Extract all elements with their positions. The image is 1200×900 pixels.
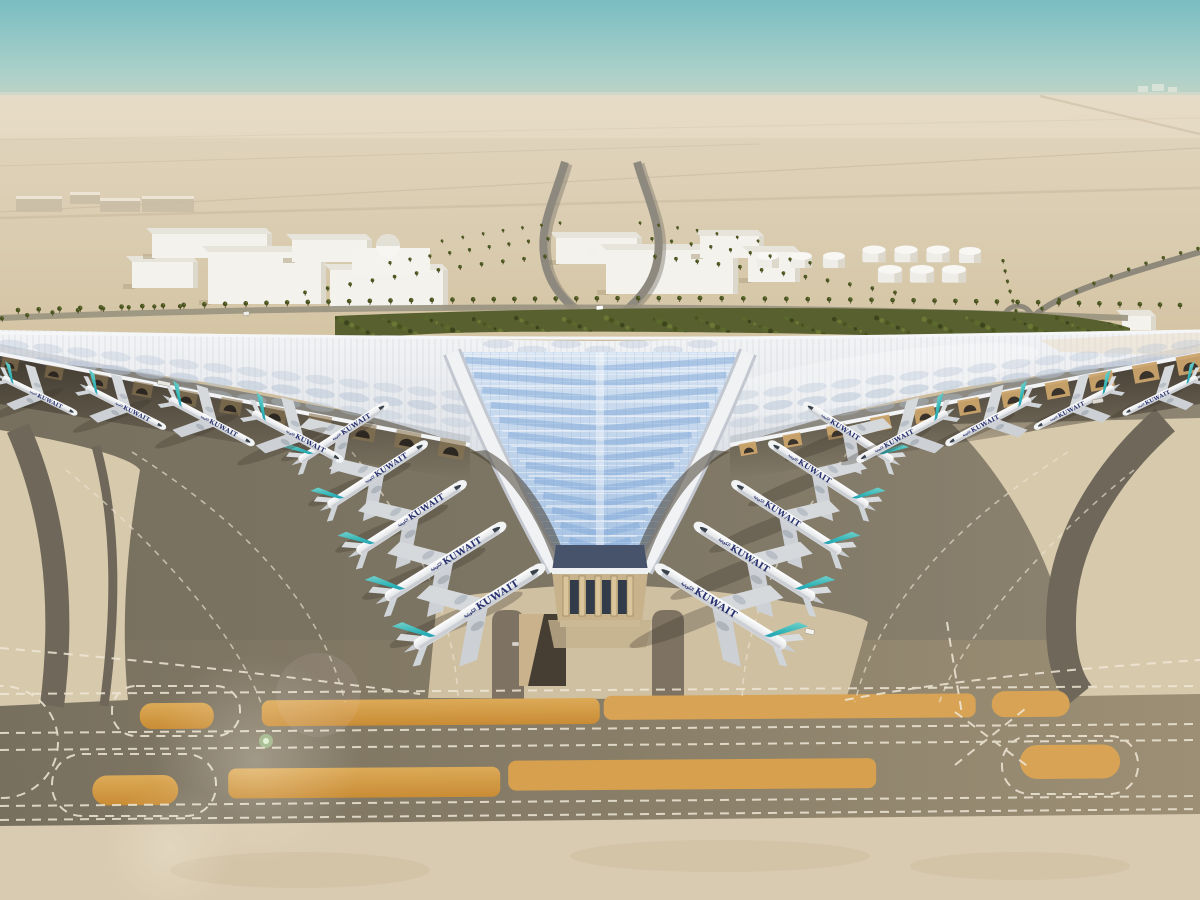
- tree-canopy-dot: [541, 328, 544, 331]
- palm-tree: [650, 237, 653, 240]
- palm-tree: [1004, 269, 1007, 272]
- tree-canopy-dot: [933, 322, 938, 327]
- tree-canopy-dot: [514, 316, 519, 321]
- tree-canopy-dot: [1055, 316, 1059, 320]
- palm-tree: [76, 308, 80, 312]
- tree-canopy-dot: [768, 329, 773, 334]
- palm-tree: [25, 313, 29, 317]
- palm-tree: [491, 297, 496, 302]
- tree-canopy-dot: [477, 320, 481, 324]
- tree-canopy-dot: [445, 325, 450, 330]
- tree-canopy-dot: [848, 325, 852, 329]
- palm-tree: [729, 248, 732, 251]
- entrance-column: [627, 576, 633, 616]
- tree-canopy-dot: [631, 328, 635, 332]
- palm-tree: [448, 251, 451, 254]
- palm-tree: [656, 296, 661, 301]
- palm-tree: [741, 296, 746, 301]
- tree-canopy-dot: [360, 328, 364, 332]
- tree-canopy-dot: [397, 324, 402, 329]
- tree-canopy-dot: [1060, 319, 1064, 323]
- tree-canopy-dot: [435, 321, 438, 324]
- tree-canopy-dot: [896, 326, 900, 330]
- palm-tree: [533, 296, 538, 301]
- tree-canopy-dot: [403, 326, 408, 331]
- palm-tree: [543, 255, 547, 259]
- palm-tree: [161, 303, 166, 308]
- tree-canopy-dot: [880, 318, 885, 323]
- tree-canopy-dot: [450, 327, 455, 332]
- fuel-tank: [823, 252, 845, 268]
- entrance-glass-wall: [552, 545, 648, 571]
- tree-canopy-dot: [609, 318, 614, 323]
- palm-tree: [1077, 301, 1082, 306]
- tree-canopy-dot: [382, 318, 385, 321]
- palm-tree: [690, 242, 693, 245]
- tree-canopy-dot: [991, 328, 996, 333]
- tree-canopy-dot: [837, 319, 841, 323]
- palm-tree: [827, 297, 832, 302]
- tree-canopy-dot: [700, 319, 703, 322]
- palm-tree: [738, 265, 742, 269]
- tree-canopy-dot: [1077, 326, 1080, 329]
- tree-canopy-dot: [1013, 318, 1016, 321]
- tree-canopy-dot: [483, 322, 486, 325]
- palm-tree: [1097, 301, 1102, 306]
- palm-tree: [1144, 261, 1147, 264]
- tree-canopy-dot: [801, 324, 804, 327]
- tree-canopy-dot: [907, 331, 910, 334]
- tree-canopy-dot: [525, 321, 529, 325]
- palm-tree: [57, 306, 62, 311]
- fuel-tank: [926, 246, 949, 263]
- tree-canopy-dot: [885, 321, 890, 326]
- palm-tree: [326, 286, 330, 290]
- fuel-tank: [959, 247, 981, 263]
- palm-tree: [890, 298, 895, 303]
- fuel-tank: [790, 252, 812, 268]
- tree-canopy-dot: [578, 324, 582, 328]
- palm-tree: [428, 254, 431, 257]
- tree-canopy-dot: [615, 320, 620, 325]
- palm-tree: [501, 259, 505, 263]
- palm-tree: [1158, 302, 1163, 307]
- horizon-haze: [0, 92, 1200, 138]
- palm-tree: [1092, 281, 1095, 284]
- palm-tree: [719, 296, 724, 301]
- tree-canopy-dot: [1024, 323, 1027, 326]
- tree-canopy-dot: [759, 325, 762, 328]
- palm-tree: [527, 240, 530, 243]
- palm-tree: [826, 278, 830, 282]
- palm-tree: [677, 296, 682, 301]
- palm-tree: [788, 258, 791, 261]
- left-sand-wedge: [0, 428, 140, 706]
- tree-canopy-dot: [355, 325, 360, 330]
- palm-tree: [437, 268, 441, 272]
- palm-tree: [303, 291, 307, 295]
- palm-tree: [507, 242, 510, 245]
- tree-canopy-dot: [843, 322, 847, 326]
- tree-canopy-dot: [812, 329, 815, 332]
- tree-canopy-dot: [536, 326, 539, 329]
- palm-tree: [348, 282, 352, 286]
- palm-tree: [574, 296, 579, 301]
- palm-tree: [1117, 301, 1122, 306]
- tree-canopy-dot: [763, 326, 768, 331]
- palm-tree: [805, 297, 810, 302]
- tree-canopy-dot: [472, 317, 476, 321]
- palm-tree: [670, 240, 673, 243]
- palm-tree: [869, 297, 874, 302]
- palm-tree: [388, 261, 391, 264]
- palm-tree: [326, 299, 331, 304]
- palm-tree: [808, 261, 811, 264]
- entrance-canopy-edge: [552, 568, 648, 574]
- palm-tree: [1075, 289, 1078, 292]
- tree-canopy-dot: [854, 327, 857, 330]
- palm-tree: [368, 299, 373, 304]
- tree-canopy-dot: [430, 319, 433, 322]
- tree-canopy-dot: [388, 320, 391, 323]
- tree-canopy-dot: [975, 320, 980, 325]
- palm-tree: [430, 298, 435, 303]
- tree-canopy-dot: [949, 329, 953, 333]
- tree-canopy-dot: [980, 323, 985, 328]
- palm-tree: [1036, 300, 1041, 305]
- tree-canopy-dot: [1066, 321, 1069, 324]
- tree-canopy-dot: [625, 325, 629, 329]
- tree-canopy-dot: [668, 324, 673, 329]
- palm-tree: [285, 300, 290, 305]
- tree-canopy-dot: [604, 315, 609, 320]
- tree-canopy-dot: [938, 324, 943, 329]
- tree-canopy-dot: [715, 325, 720, 330]
- tree-canopy-dot: [441, 324, 444, 327]
- palm-tree: [893, 291, 897, 295]
- palm-tree: [512, 297, 517, 302]
- palm-tree: [450, 297, 455, 302]
- palm-tree: [119, 304, 124, 309]
- palm-tree: [471, 297, 476, 302]
- palm-tree: [1196, 247, 1199, 250]
- tree-canopy-dot: [519, 318, 523, 322]
- palm-tree: [763, 296, 768, 301]
- palm-tree: [488, 245, 491, 248]
- palm-tree: [636, 296, 641, 301]
- palm-tree: [848, 297, 853, 302]
- palm-tree: [717, 262, 721, 266]
- tree-canopy-dot: [1028, 324, 1033, 329]
- tree-canopy-dot: [832, 317, 837, 322]
- palm-tree: [458, 265, 462, 269]
- tree-canopy-dot: [673, 327, 678, 332]
- tree-canopy-dot: [965, 316, 968, 319]
- palm-tree: [709, 245, 712, 248]
- palm-tree: [202, 302, 207, 307]
- palm-tree: [995, 299, 1000, 304]
- palm-tree: [932, 298, 937, 303]
- palm-tree: [546, 237, 549, 240]
- entrance-column: [579, 576, 585, 616]
- tree-canopy-dot: [986, 325, 991, 330]
- palm-tree: [264, 301, 269, 306]
- tree-canopy-dot: [657, 319, 662, 324]
- palm-tree: [784, 296, 789, 301]
- distant-building: [1152, 84, 1164, 91]
- tree-canopy-dot: [742, 317, 746, 321]
- tree-canopy-dot: [662, 321, 667, 326]
- palm-tree: [101, 306, 105, 310]
- palm-tree: [1058, 298, 1061, 301]
- tree-canopy-dot: [874, 315, 879, 320]
- palm-tree: [371, 278, 375, 282]
- tree-canopy-dot: [748, 320, 751, 323]
- palm-tree: [178, 304, 182, 308]
- palm-tree: [595, 296, 600, 301]
- palm-tree: [243, 301, 248, 306]
- palm-tree: [140, 304, 145, 309]
- tree-canopy-dot: [753, 322, 756, 325]
- palm-tree: [769, 254, 772, 257]
- tree-canopy-dot: [530, 323, 534, 327]
- tree-canopy-dot: [795, 321, 799, 325]
- tree-canopy-dot: [344, 320, 349, 325]
- palm-tree: [1178, 303, 1183, 308]
- tree-canopy-dot: [943, 327, 947, 331]
- entrance-columns: [563, 576, 633, 616]
- palm-tree: [347, 299, 352, 304]
- entrance-column: [611, 576, 617, 616]
- palm-tree: [408, 258, 411, 261]
- tree-canopy-dot: [706, 321, 709, 324]
- tree-canopy-dot: [695, 316, 698, 319]
- tree-canopy-dot: [339, 318, 344, 323]
- tree-canopy-dot: [392, 321, 397, 326]
- fuel-tank: [910, 265, 934, 283]
- palm-tree: [1001, 259, 1004, 262]
- palm-tree: [181, 303, 186, 308]
- palm-tree: [306, 300, 311, 305]
- palm-tree: [409, 298, 414, 303]
- palm-tree: [1006, 279, 1009, 282]
- palm-tree: [615, 296, 620, 301]
- palm-tree: [848, 282, 852, 286]
- palm-tree: [653, 255, 657, 259]
- tree-canopy-dot: [408, 329, 413, 334]
- tree-canopy-dot: [890, 323, 894, 327]
- airport-aerial-rendering: الكويتية KUWAITالكويتية KUWAITالكويتية K…: [0, 0, 1200, 900]
- palm-tree: [1179, 251, 1182, 254]
- tree-canopy-dot: [653, 318, 656, 321]
- palm-tree: [1040, 307, 1043, 310]
- palm-tree: [1127, 268, 1130, 271]
- palm-tree: [468, 248, 471, 251]
- tree-canopy-dot: [806, 326, 809, 329]
- ground-vehicle: [512, 642, 519, 646]
- tree-canopy-dot: [620, 323, 625, 328]
- tree-canopy-dot: [583, 327, 587, 331]
- palm-tree: [1138, 302, 1143, 307]
- palm-tree: [1011, 299, 1014, 302]
- ground-vehicle: [243, 311, 249, 316]
- tree-canopy-dot: [494, 327, 497, 330]
- palm-tree: [16, 308, 21, 313]
- tree-canopy-dot: [567, 319, 572, 324]
- distant-building: [1138, 86, 1148, 92]
- palm-tree: [804, 275, 808, 279]
- tree-canopy-dot: [1018, 320, 1021, 323]
- palm-tree: [393, 275, 397, 279]
- palm-tree: [1110, 274, 1113, 277]
- fuel-tank: [878, 265, 902, 283]
- tree-canopy-dot: [784, 316, 788, 320]
- palm-tree: [0, 316, 4, 320]
- palm-tree: [223, 302, 228, 307]
- palm-tree: [695, 259, 699, 263]
- tree-canopy-dot: [710, 323, 715, 328]
- palm-tree: [782, 271, 786, 275]
- distant-building: [1168, 87, 1177, 92]
- support-building: [123, 256, 198, 289]
- tree-canopy-dot: [1071, 324, 1074, 327]
- palm-tree: [388, 298, 393, 303]
- palm-tree: [674, 257, 678, 261]
- tree-canopy-dot: [901, 328, 905, 332]
- palm-tree: [1015, 300, 1020, 305]
- palm-tree: [480, 262, 484, 266]
- tree-canopy-dot: [1124, 327, 1127, 330]
- entrance-column: [595, 576, 601, 616]
- palm-tree: [553, 296, 558, 301]
- tree-canopy-dot: [859, 330, 862, 333]
- palm-tree: [415, 271, 419, 275]
- tree-canopy-dot: [865, 332, 868, 335]
- palm-tree: [698, 296, 703, 301]
- palm-tree: [36, 307, 41, 312]
- palm-tree: [1014, 309, 1017, 312]
- tree-canopy-dot: [927, 319, 932, 324]
- tree-canopy-dot: [572, 322, 576, 326]
- tree-canopy-dot: [971, 319, 974, 322]
- fuel-tank: [894, 246, 917, 263]
- palm-tree: [871, 286, 875, 290]
- entrance-steps: [560, 620, 640, 627]
- palm-tree: [953, 299, 958, 304]
- fuel-tank: [862, 246, 885, 263]
- tree-canopy-dot: [922, 317, 927, 322]
- tree-canopy-dot: [424, 316, 428, 320]
- tree-canopy-dot: [488, 325, 491, 328]
- palm-tree: [749, 251, 752, 254]
- tree-canopy-dot: [366, 330, 370, 334]
- palm-tree: [760, 268, 764, 272]
- tree-canopy-dot: [721, 328, 726, 333]
- palm-tree: [152, 304, 156, 308]
- entrance-pavilion: [552, 545, 648, 627]
- tree-canopy-dot: [790, 318, 794, 322]
- tree-canopy-dot: [335, 317, 338, 320]
- fuel-tank: [942, 265, 966, 283]
- palm-tree: [974, 299, 979, 304]
- entrance-column: [563, 576, 569, 616]
- fuel-tank: [757, 252, 779, 268]
- palm-tree: [50, 310, 54, 314]
- palm-tree: [1008, 289, 1011, 292]
- palm-tree: [1162, 256, 1165, 259]
- palm-tree: [911, 298, 916, 303]
- tree-canopy-dot: [562, 317, 567, 322]
- tree-canopy-dot: [350, 323, 355, 328]
- palm-tree: [522, 257, 526, 261]
- palm-tree: [127, 305, 131, 309]
- scene-canvas: الكويتية KUWAITالكويتية KUWAITالكويتية K…: [0, 0, 1200, 900]
- tree-canopy-dot: [1033, 326, 1038, 331]
- ground-vehicle: [596, 305, 603, 310]
